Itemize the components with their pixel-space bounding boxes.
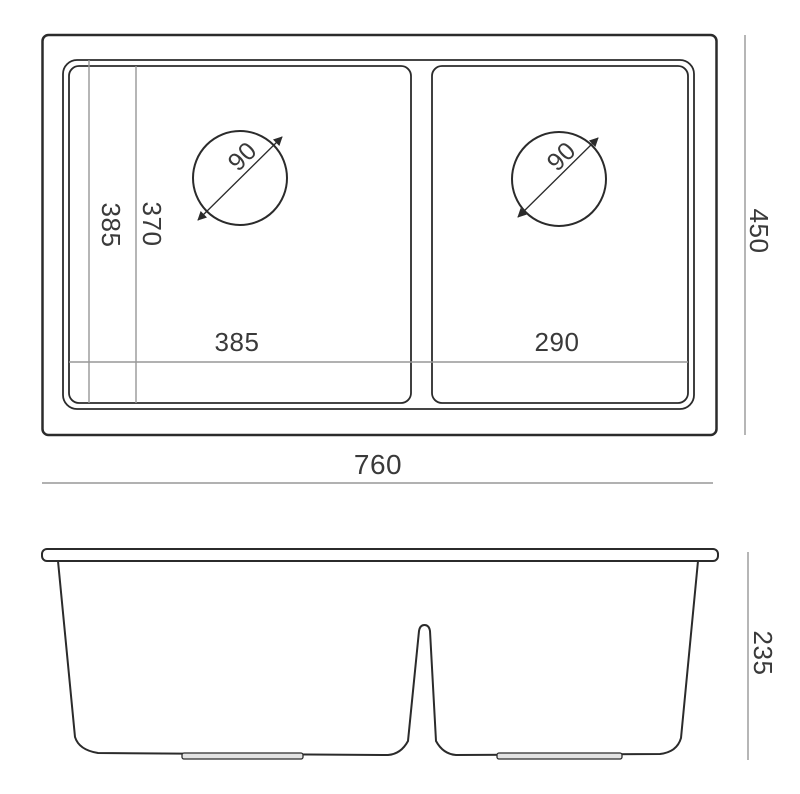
- top-view: [42, 35, 745, 483]
- dim-label-overall-width: 760: [354, 451, 402, 479]
- dim-label-front-height: 235: [750, 631, 776, 676]
- sink-dimension-drawing: 385 370 90 90 385 290 450 760 235: [0, 0, 800, 794]
- front-foot-right: [497, 753, 622, 759]
- front-view: [42, 549, 748, 760]
- front-view-rim: [42, 549, 718, 561]
- drawing-linework: [0, 0, 800, 794]
- dim-label-overall-depth: 450: [746, 209, 772, 254]
- front-foot-left: [182, 753, 303, 759]
- dim-label-bowl-right-width: 290: [535, 329, 580, 355]
- dim-label-bowl-left-width: 385: [215, 329, 260, 355]
- dim-label-bowl-depth-outer: 385: [98, 203, 124, 248]
- dim-label-bowl-depth-inner: 370: [139, 202, 165, 247]
- front-view-body-outline: [58, 561, 698, 755]
